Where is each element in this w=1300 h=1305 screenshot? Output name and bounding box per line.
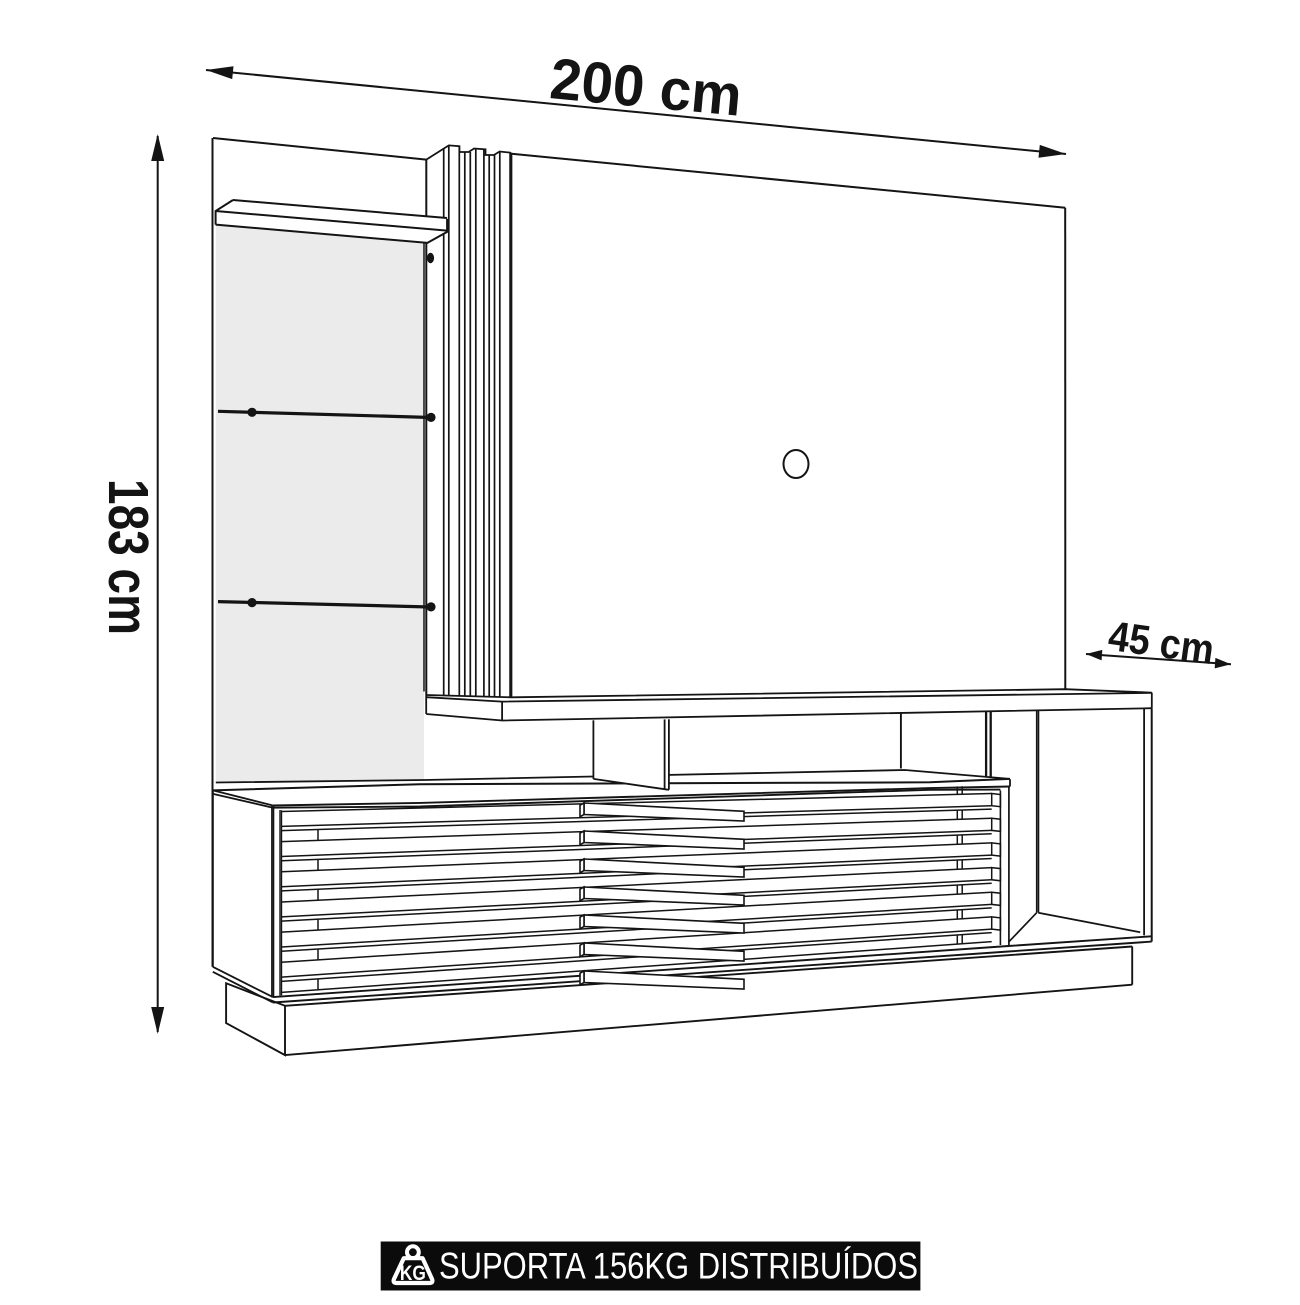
svg-text:200 cm: 200 cm bbox=[547, 46, 744, 128]
svg-text:45 cm: 45 cm bbox=[1106, 612, 1218, 673]
svg-text:KG: KG bbox=[400, 1262, 426, 1285]
svg-text:SUPORTA 156KG DISTRIBUÍDOS: SUPORTA 156KG DISTRIBUÍDOS bbox=[439, 1246, 918, 1287]
svg-text:183 cm: 183 cm bbox=[96, 479, 160, 635]
